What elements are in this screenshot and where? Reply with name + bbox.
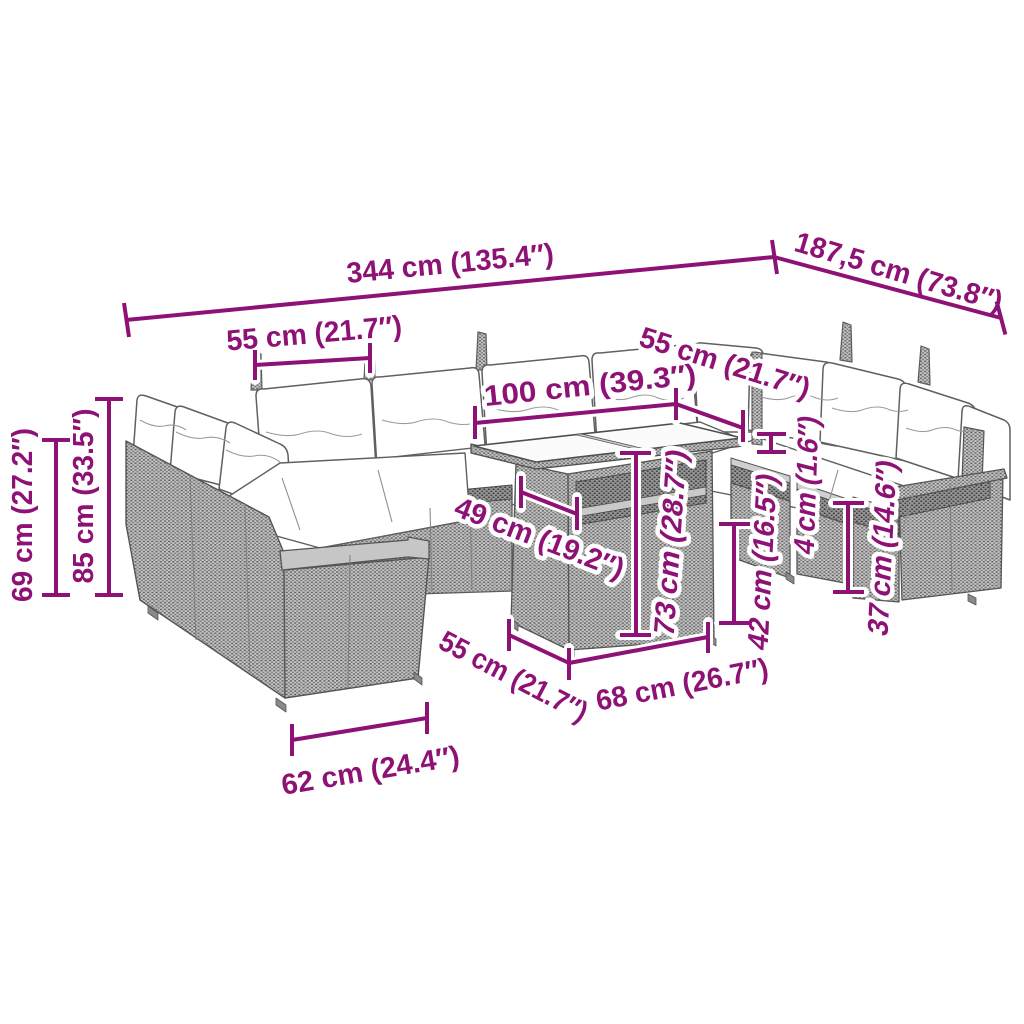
svg-text:69 cm (27.2″): 69 cm (27.2″): [7, 428, 39, 602]
svg-text:4 cm (1.6″): 4 cm (1.6″): [788, 412, 825, 558]
svg-text:85 cm (33.5″): 85 cm (33.5″): [68, 409, 100, 584]
